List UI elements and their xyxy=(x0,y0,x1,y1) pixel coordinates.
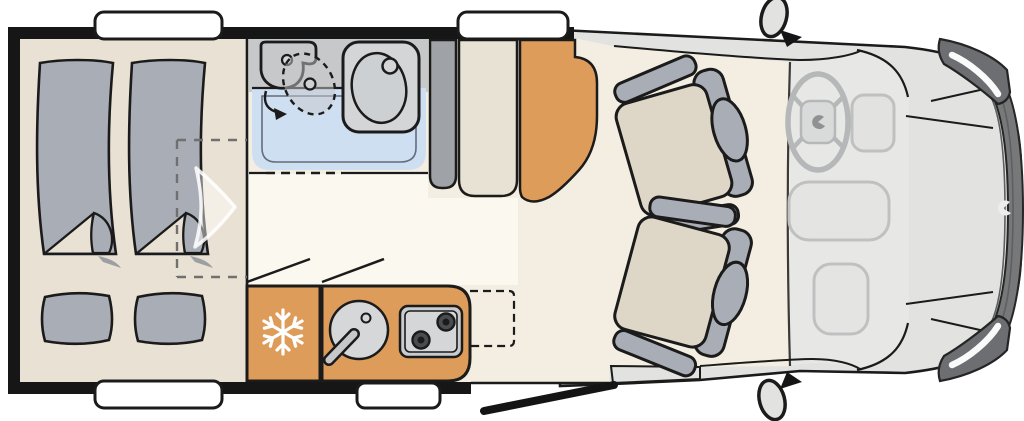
window-rear-top xyxy=(95,12,222,39)
mirror-arm-bottom xyxy=(780,372,802,389)
hob-burner-2-center xyxy=(443,319,450,326)
console-panel xyxy=(814,264,868,334)
window-kitchen-bottom xyxy=(357,383,440,408)
window-mid-top xyxy=(458,12,568,39)
hob-burner-1-center xyxy=(418,337,425,344)
partition-gray xyxy=(430,40,456,188)
side-mirror-bottom xyxy=(755,372,802,421)
campervan-floorplan xyxy=(0,0,1024,421)
wardrobe-beige xyxy=(459,40,517,196)
pillow-left xyxy=(42,293,112,344)
floorplan-canvas xyxy=(0,0,1024,421)
dashboard xyxy=(852,95,894,151)
bed-left xyxy=(37,60,121,268)
washbasin-drain xyxy=(383,59,398,74)
toilet-swivel-button xyxy=(305,79,316,90)
pillow-right xyxy=(135,293,205,344)
window-rear-bottom xyxy=(95,381,222,408)
bathroom xyxy=(249,38,428,173)
wardrobes xyxy=(430,40,597,202)
engine-hump xyxy=(789,182,889,240)
entry-door-open xyxy=(484,385,614,411)
